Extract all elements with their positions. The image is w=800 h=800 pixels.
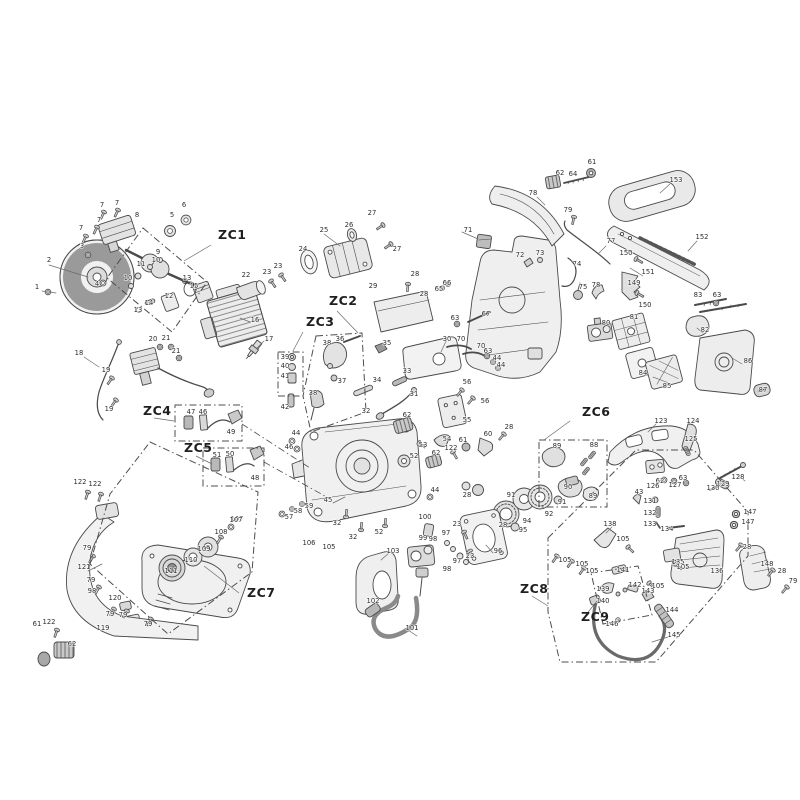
part-number-label: 19 (102, 366, 111, 374)
part-number-label: 34 (373, 376, 382, 384)
part-number-label: 43 (635, 488, 644, 496)
part-number-label: 67 (482, 310, 491, 318)
part-number-label: 79 (83, 544, 92, 552)
part-number-label: 120 (109, 594, 122, 602)
part-number-label: 28 (743, 543, 752, 551)
switch-set-2 (211, 446, 264, 472)
part-number-label: 64 (569, 170, 578, 178)
part-number-label: 55 (463, 416, 472, 424)
part-number-label: 50 (226, 450, 235, 458)
part-number-label: 122 (74, 478, 87, 486)
part-number-label: 11 (137, 260, 146, 268)
part-number-label: 98 (429, 535, 438, 543)
chain-cover (605, 167, 700, 226)
part-number-label: 13 (183, 274, 192, 282)
part-number-label: 83 (694, 291, 703, 299)
part-number-label: 94 (523, 517, 532, 525)
part-number-label: 96 (494, 547, 503, 555)
part-number-label: 139 (597, 585, 610, 593)
part-number-label: 79 (144, 620, 153, 628)
gasket-plate (403, 337, 461, 379)
part-number-label: 39 (281, 353, 290, 361)
part-number-label: 71 (464, 226, 473, 234)
part-number-label: 10 (152, 256, 161, 264)
part-number-label: 46 (285, 443, 294, 451)
part-number-label: 23 (263, 268, 272, 276)
air-box-grommet (476, 234, 492, 249)
part-number-label: 27 (368, 209, 377, 217)
part-number-label: 8 (135, 211, 139, 219)
part-number-label: 2 (47, 256, 51, 264)
part-number-label: 44 (292, 429, 301, 437)
part-number-label: 28 (505, 423, 514, 431)
part-number-label: 28 (778, 567, 787, 575)
part-number-label: 14 (145, 299, 154, 307)
part-number-label: 40 (281, 362, 290, 370)
part-number-label: 6 (182, 201, 186, 209)
zone-label-zc5: ZC5 (184, 440, 212, 455)
part-number-label: 61 (33, 620, 42, 628)
part-number-label: 145 (668, 631, 681, 639)
part-number-label: 102 (367, 597, 380, 605)
part-number-label: 88 (590, 441, 599, 449)
zone-leader (293, 332, 303, 351)
part-number-label: 62 (556, 169, 565, 177)
part-number-label: 141 (617, 566, 630, 574)
part-number-label: 107 (230, 516, 243, 524)
part-number-label: 57 (285, 513, 294, 521)
part-number-label: 41 (281, 372, 290, 380)
part-number-label: 63 (484, 347, 493, 355)
part-number-label: 105 (559, 556, 572, 564)
part-number-label: 26 (345, 221, 354, 229)
part-number-label: 148 (761, 560, 774, 568)
part-number-label: 87 (759, 386, 768, 394)
part-number-label: 153 (670, 176, 683, 184)
part-number-label: 140 (597, 597, 610, 605)
rear-handle-housing (466, 236, 562, 378)
part-number-label: 29 (369, 282, 378, 290)
part-number-label: 42 (281, 403, 290, 411)
part-number-label: 131 (644, 497, 657, 505)
part-number-label: 49 (227, 428, 236, 436)
part-number-label: 152 (696, 233, 709, 241)
part-number-label: 31 (410, 390, 419, 398)
part-number-label: 32 (362, 407, 371, 415)
part-number-label: 62 (432, 449, 441, 457)
part-number-label: 28 (463, 491, 472, 499)
part-number-label: 100 (419, 513, 432, 521)
part-number-label: 105 (677, 563, 690, 571)
part-number-label: 110 (185, 556, 198, 564)
part-number-label: 51 (213, 451, 222, 459)
part-number-label: 111 (165, 567, 178, 575)
part-number-label: 109 (198, 545, 211, 553)
part-number-label: 70 (457, 335, 466, 343)
part-number-label: 7 (79, 224, 83, 232)
part-number-label: 7 (97, 216, 101, 224)
part-number-label: 95 (519, 526, 528, 534)
zone-label-zc7: ZC7 (247, 585, 275, 600)
part-number-label: 28 (499, 521, 508, 529)
part-number-label: 79 (789, 577, 798, 585)
part-number-label: 18 (75, 349, 84, 357)
bar-studs (695, 299, 746, 312)
part-number-label: 52 (410, 452, 419, 460)
zone-leader (532, 596, 548, 606)
part-number-label: 122 (445, 444, 458, 452)
diagram-canvas: ZC1ZC2ZC3ZC4ZC5ZC6ZC7ZC8ZC9 777786532149… (0, 0, 800, 800)
part-number-label: 60 (484, 430, 493, 438)
part-number-label: 144 (666, 606, 679, 614)
part-number-label: 61 (459, 436, 468, 444)
part-number-label: 73 (536, 249, 545, 257)
part-number-label: 82 (701, 326, 710, 334)
part-number-label: 86 (744, 357, 753, 365)
part-number-label: 105 (617, 535, 630, 543)
part-number-label: 130 (707, 484, 720, 492)
part-number-label: 85 (663, 382, 672, 390)
part-number-label: 22 (242, 271, 251, 279)
part-number-label: 1 (35, 283, 39, 291)
part-number-label: 7 (115, 199, 119, 207)
part-number-label: 35 (383, 339, 392, 347)
part-number-label: 98 (88, 587, 97, 595)
part-number-label: 147 (742, 518, 755, 526)
part-number-label: 150 (620, 249, 633, 257)
part-number-label: 97 (453, 557, 462, 565)
part-number-label: 28 (420, 290, 429, 298)
part-number-label: 127 (669, 481, 682, 489)
part-number-label: 124 (687, 417, 700, 425)
part-number-label: 23 (453, 520, 462, 528)
part-number-label: 36 (336, 335, 345, 343)
chainsaw-parts-diagram: ZC1ZC2ZC3ZC4ZC5ZC6ZC7ZC8ZC9 777786532149… (0, 0, 800, 800)
part-number-label: 3 (80, 242, 84, 250)
zone-leader (337, 311, 358, 333)
part-number-label: 38 (309, 389, 318, 397)
throttle-rod (564, 221, 610, 264)
part-number-label: 121 (78, 563, 91, 571)
part-number-label: 63 (451, 314, 460, 322)
spark-plug-icon (243, 339, 263, 361)
zone-leader (184, 245, 211, 261)
part-number-label: 59 (305, 502, 314, 510)
part-number-label: 44 (497, 361, 506, 369)
part-number-label: 98 (443, 565, 452, 573)
part-number-label: 17 (265, 335, 274, 343)
zone-label-zc6: ZC6 (582, 404, 610, 419)
part-number-label: 91 (558, 498, 567, 506)
part-number-label: 16 (251, 316, 260, 324)
part-number-label: 123 (655, 417, 668, 425)
part-number-label: 133 (644, 520, 657, 528)
part-number-label: 47 (187, 408, 196, 416)
mount-brackets (594, 526, 684, 575)
part-number-label: 24 (299, 245, 308, 253)
part-number-label: 101 (406, 624, 419, 632)
part-number-label: 72 (516, 251, 525, 259)
part-number-label: 97 (442, 529, 451, 537)
part-number-label: 56 (463, 378, 472, 386)
part-number-label: 108 (215, 528, 228, 536)
zone-leader (154, 418, 174, 421)
part-number-label: 90 (564, 483, 573, 491)
part-number-label: 7 (100, 201, 104, 209)
zone-label-zc2: ZC2 (329, 293, 357, 308)
part-number-label: 138 (604, 520, 617, 528)
part-number-label: 37 (338, 377, 347, 385)
part-number-label: 136 (711, 567, 724, 575)
part-number-label: 4 (95, 280, 99, 288)
part-number-label: 62 (403, 411, 412, 419)
part-number-label: 105 (323, 543, 336, 551)
part-number-label: 77 (607, 237, 616, 245)
part-number-label: 30 (443, 335, 452, 343)
part-number-label: 89 (553, 442, 562, 450)
part-number-label: 28 (411, 270, 420, 278)
part-number-label: 48 (251, 474, 260, 482)
part-number-label: 80 (602, 319, 611, 327)
part-number-label: 44 (431, 486, 440, 494)
part-number-label: 62 (68, 640, 77, 648)
part-number-label: 150 (639, 301, 652, 309)
part-number-label: 79 (106, 610, 115, 618)
part-number-label: 79 (119, 611, 128, 619)
wire-terminal (117, 340, 122, 345)
part-number-label: 21 (162, 334, 171, 342)
part-number-label: 20 (149, 335, 158, 343)
part-number-label: 142 (629, 581, 642, 589)
part-number-label: 92 (545, 510, 554, 518)
part-number-label: 89 (589, 492, 598, 500)
part-number-label: 32 (333, 519, 342, 527)
ignition-coil (129, 347, 162, 386)
zone-label-zc1: ZC1 (218, 227, 246, 242)
part-number-label: 84 (639, 369, 648, 377)
part-number-label: 25 (320, 226, 329, 234)
part-number-label: 74 (573, 260, 582, 268)
part-number-label: 75 (579, 283, 588, 291)
part-number-label: 23 (274, 262, 283, 270)
part-number-label: 106 (303, 539, 316, 547)
part-number-label: 56 (481, 397, 490, 405)
part-number-label: 63 (713, 291, 722, 299)
plug-boot (203, 388, 215, 399)
muffler (323, 237, 373, 279)
part-number-label: 132 (644, 509, 657, 517)
part-number-label: 79 (87, 576, 96, 584)
part-number-label: 143 (642, 587, 655, 595)
part-number-label: 105 (586, 567, 599, 575)
part-number-label: 10 (124, 274, 133, 282)
part-number-label: 9 (156, 248, 160, 256)
part-number-label: 91 (507, 491, 516, 499)
part-number-label: 125 (685, 435, 698, 443)
part-number-label: 53 (419, 441, 428, 449)
part-number-label: 32 (349, 533, 358, 541)
part-number-label: 122 (43, 618, 56, 626)
part-number-label: 61 (588, 158, 597, 166)
zone-label-zc3: ZC3 (306, 314, 334, 329)
part-number-label: 128 (732, 473, 745, 481)
part-number-label: 66 (443, 279, 452, 287)
part-number-label: 149 (628, 279, 641, 287)
part-number-label: 45 (324, 496, 333, 504)
part-number-label: 58 (294, 507, 303, 515)
part-number-label: 13 (134, 306, 143, 314)
part-number-label: 79 (564, 206, 573, 214)
part-number-label: 19 (105, 405, 114, 413)
part-number-label: 81 (630, 313, 639, 321)
part-number-label: 99 (419, 534, 428, 542)
part-number-label: 46 (199, 408, 208, 416)
part-number-label: 38 (323, 339, 332, 347)
part-number-label: 21 (172, 347, 181, 355)
part-number-label: 27 (393, 245, 402, 253)
part-number-label: 147 (744, 508, 757, 516)
zone-label-zc8: ZC8 (520, 581, 548, 596)
part-number-label: 78 (529, 189, 538, 197)
part-number-label: 134 (661, 525, 674, 533)
part-number-label: 103 (387, 547, 400, 555)
part-number-label: 33 (403, 367, 412, 375)
part-number-label: 15 (190, 282, 199, 290)
part-number-label: 122 (89, 480, 102, 488)
bracket-60 (478, 438, 493, 456)
part-number-label: 151 (642, 268, 655, 276)
part-number-label: 54 (443, 435, 452, 443)
part-number-label: 146 (606, 620, 619, 628)
zone-label-zc4: ZC4 (143, 403, 171, 418)
part-number-label: 126 (647, 482, 660, 490)
zone-leader (544, 421, 570, 440)
part-number-label: 5 (170, 211, 174, 219)
part-number-label: 78 (592, 281, 601, 289)
zone-leader (196, 456, 212, 464)
part-number-label: 23 (466, 552, 475, 560)
part-number-label: 52 (375, 528, 384, 536)
part-number-label: 119 (97, 624, 110, 632)
part-number-label: 12 (165, 292, 174, 300)
spark-plug-wire (158, 368, 209, 393)
